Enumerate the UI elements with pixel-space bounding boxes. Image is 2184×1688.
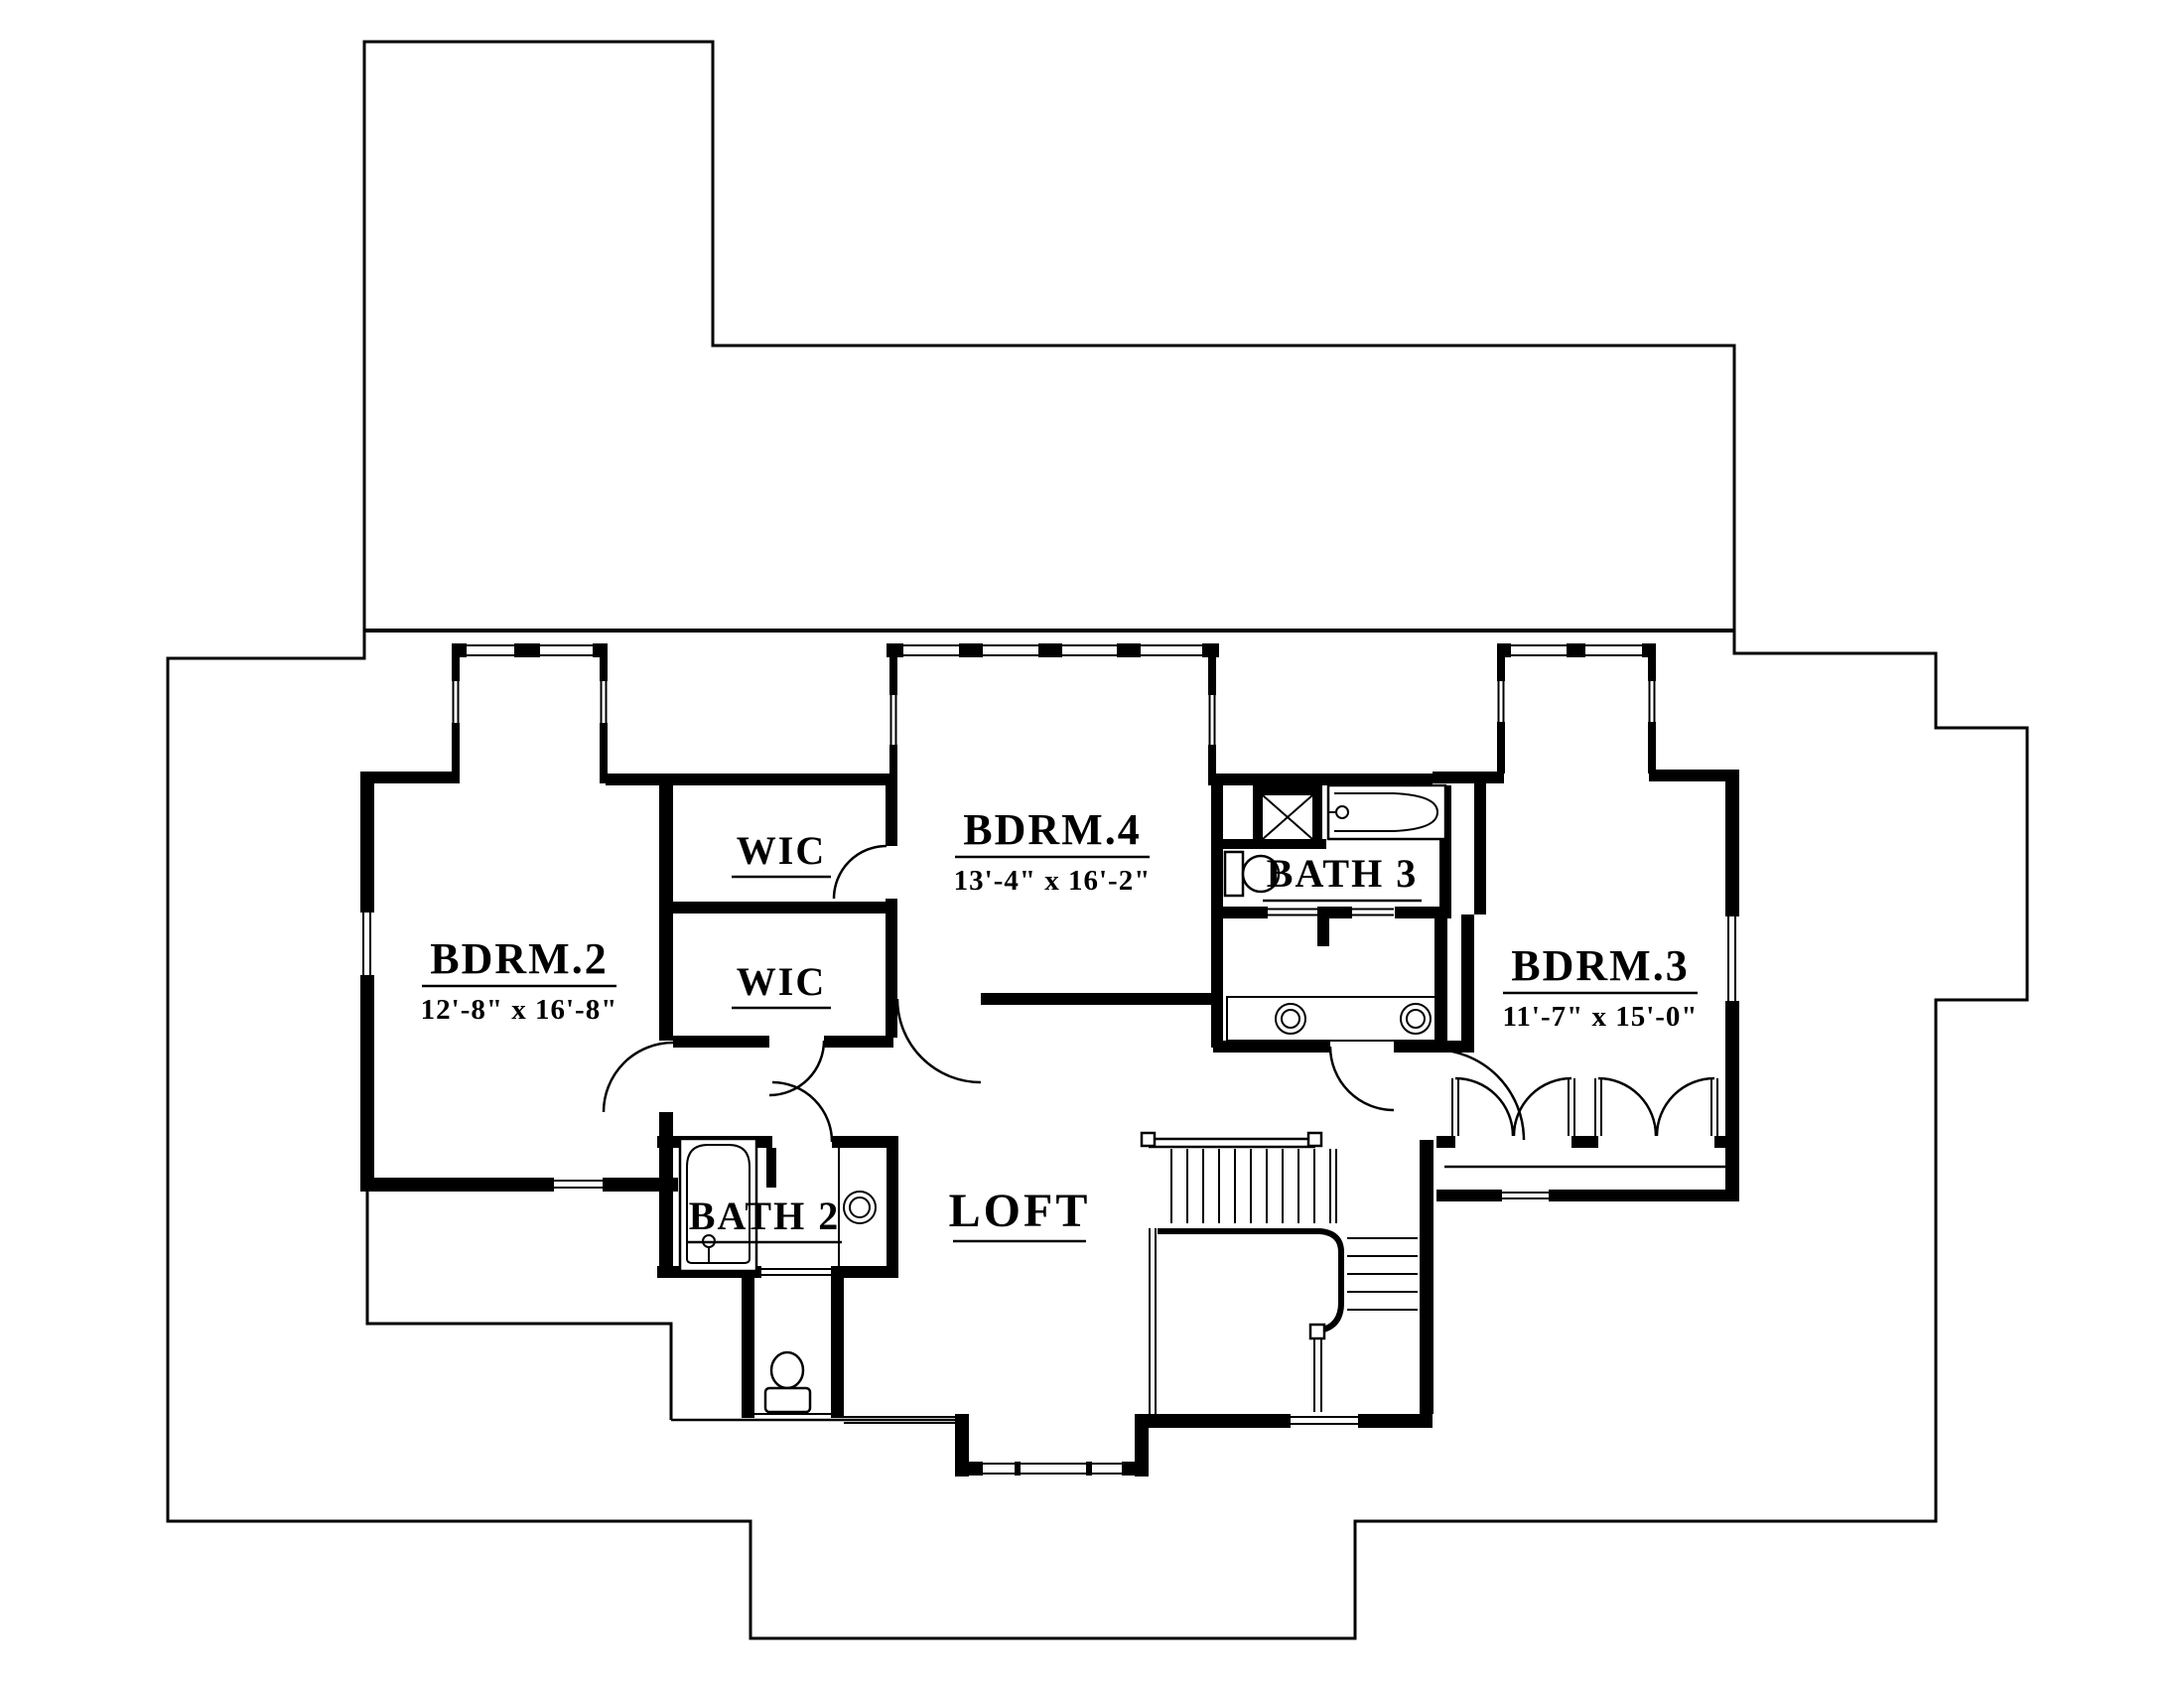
shower bbox=[1263, 795, 1312, 839]
wic-upper-label: WIC bbox=[737, 828, 826, 873]
room-bdrm2: BDRM.2 12'-8" x 16'-8" bbox=[421, 934, 618, 1026]
stairwell-railing bbox=[1150, 1228, 1341, 1414]
bath2-door-arc bbox=[772, 1082, 832, 1142]
bath3-label: BATH 3 bbox=[1267, 851, 1418, 896]
room-bath3: BATH 3 bbox=[1263, 851, 1422, 901]
bdrm4-dims: 13'-4" x 16'-2" bbox=[954, 865, 1152, 897]
bdrm4-door-arc bbox=[897, 999, 981, 1082]
room-loft: LOFT bbox=[949, 1185, 1091, 1241]
bdrm3-label: BDRM.3 bbox=[1511, 941, 1689, 990]
bdrm3-door-arc bbox=[1433, 1050, 1524, 1140]
bdrm2-door-arc bbox=[604, 1043, 673, 1112]
floor-plan: BDRM.2 12'-8" x 16'-8" BDRM.4 13'-4" x 1… bbox=[0, 0, 2184, 1688]
bathtub-bath3 bbox=[1328, 785, 1445, 839]
loft-label: LOFT bbox=[949, 1185, 1091, 1237]
bdrm4-label: BDRM.4 bbox=[963, 805, 1141, 854]
toilet-wc bbox=[752, 1352, 832, 1414]
stairs bbox=[1142, 1133, 1418, 1414]
room-bath2: BATH 2 bbox=[687, 1194, 842, 1242]
wic-upper-door-arc bbox=[834, 846, 887, 899]
room-bdrm4: BDRM.4 13'-4" x 16'-2" bbox=[954, 805, 1152, 897]
bdrm2-label: BDRM.2 bbox=[430, 934, 608, 983]
floor-plan-drawing: BDRM.2 12'-8" x 16'-8" BDRM.4 13'-4" x 1… bbox=[0, 0, 2184, 1688]
upper-flight-treads bbox=[1171, 1149, 1336, 1223]
room-wic-upper: WIC bbox=[732, 828, 831, 877]
closet-doors bbox=[1452, 1078, 1717, 1136]
wic-lower-label: WIC bbox=[737, 959, 826, 1004]
lower-flight-treads bbox=[1347, 1238, 1418, 1310]
sink-bath2 bbox=[839, 1139, 876, 1267]
walls bbox=[360, 643, 1739, 1477]
bath3-hall-door-arc bbox=[1330, 1047, 1394, 1110]
bdrm3-dims: 11'-7" x 15'-0" bbox=[1502, 1001, 1698, 1033]
bdrm2-dims: 12'-8" x 16'-8" bbox=[421, 994, 618, 1026]
room-labels: BDRM.2 12'-8" x 16'-8" BDRM.4 13'-4" x 1… bbox=[421, 805, 1699, 1242]
room-wic-lower: WIC bbox=[732, 959, 831, 1008]
vanity-sinks bbox=[1227, 997, 1437, 1041]
bath2-label: BATH 2 bbox=[689, 1194, 840, 1238]
room-bdrm3: BDRM.3 11'-7" x 15'-0" bbox=[1502, 941, 1698, 1033]
